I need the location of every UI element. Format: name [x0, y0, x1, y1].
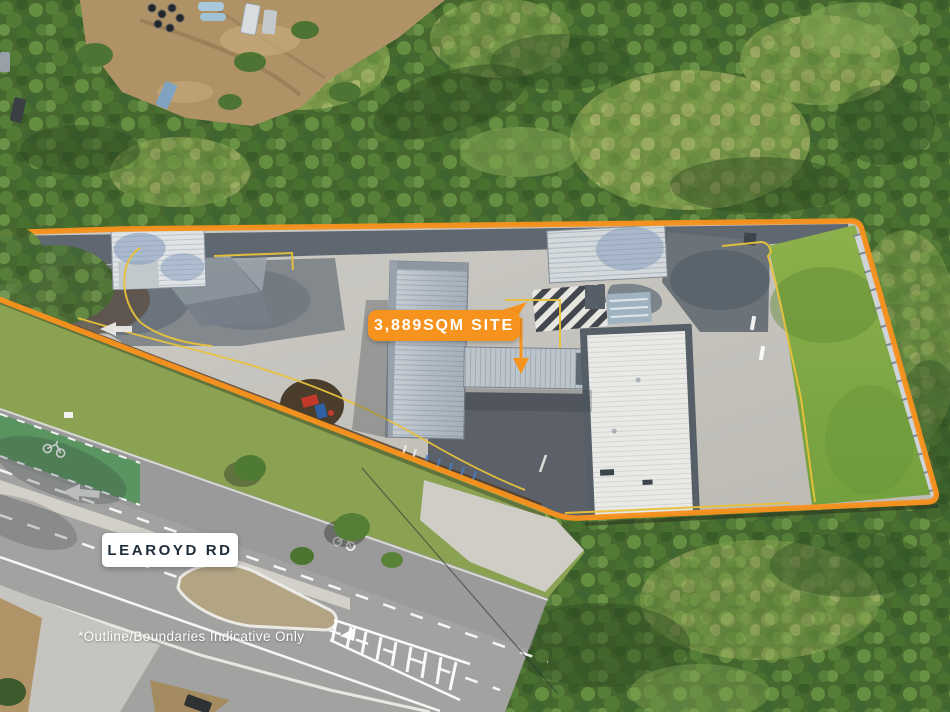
aerial-photo: 3,889SQM SITE LEAROYD RD *Outline/Bounda… — [0, 0, 950, 712]
site-area-label-text: 3,889SQM SITE — [374, 317, 514, 335]
plant-structure — [585, 285, 605, 309]
road-sign — [64, 412, 73, 418]
building-top-right — [547, 225, 668, 283]
aerial-photo-scene — [0, 0, 950, 712]
road-name-label: LEAROYD RD — [102, 533, 238, 567]
canopy-building — [386, 261, 469, 439]
canopy-wing — [464, 347, 593, 389]
site-area-label: 3,889SQM SITE — [368, 310, 520, 341]
disclaimer-text: *Outline/Boundaries Indicative Only — [78, 629, 304, 644]
road-name-text: LEAROYD RD — [107, 542, 232, 559]
roller-door-roof — [606, 292, 652, 324]
main-building — [580, 324, 700, 525]
